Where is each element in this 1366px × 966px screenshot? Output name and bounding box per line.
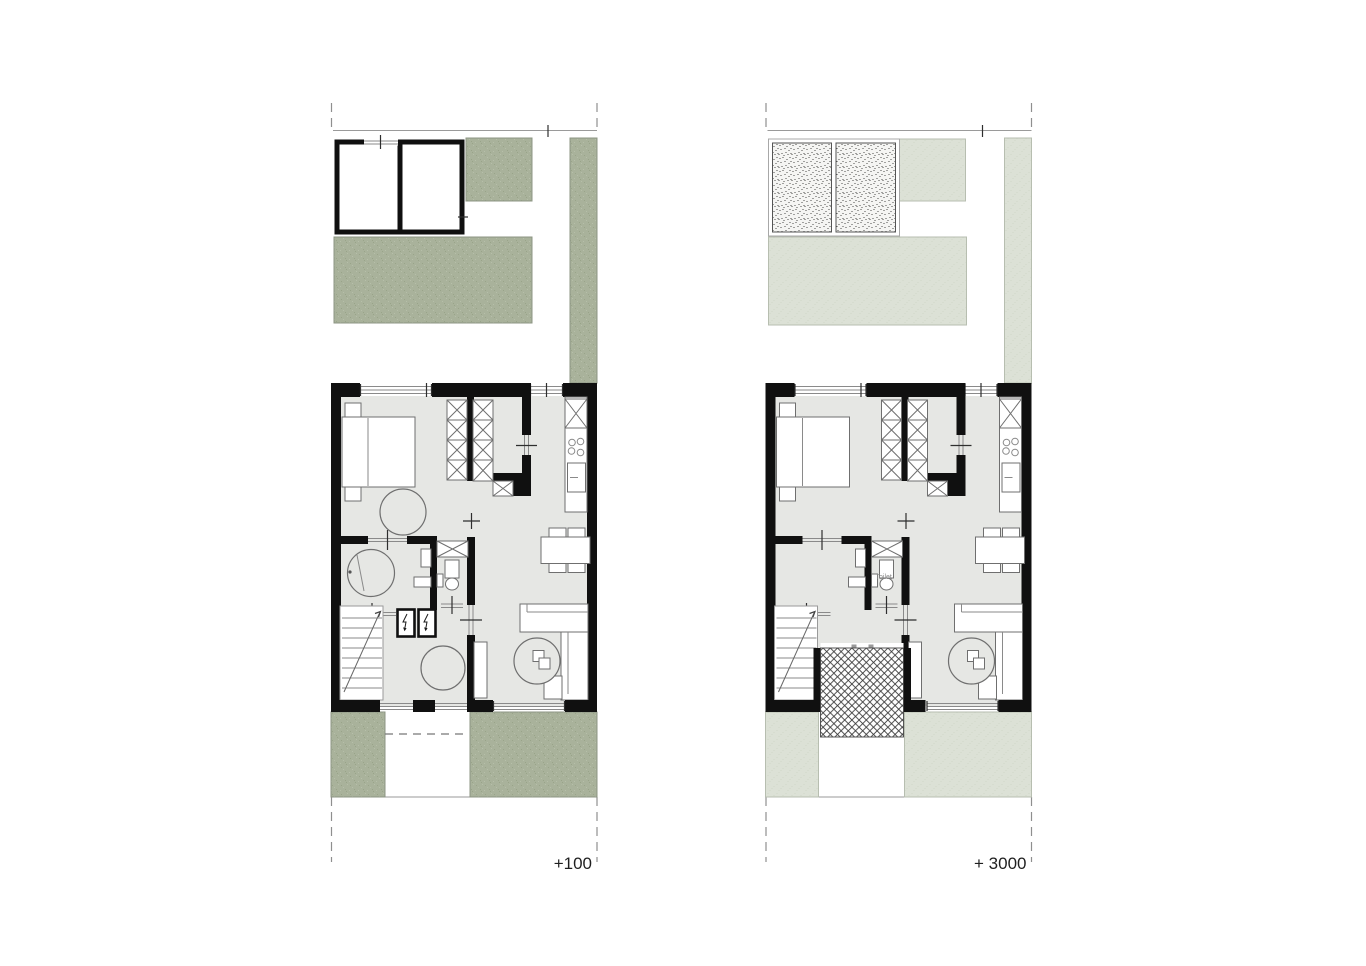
gravel-roof-1 <box>773 143 832 232</box>
garage-roofs <box>769 139 900 236</box>
garage-box-1 <box>337 142 400 232</box>
garage-box-2 <box>400 142 462 232</box>
garden-strip-right <box>570 138 597 383</box>
garden-block-large <box>334 237 532 323</box>
plan-drawing-canvas: +100 <box>0 0 1366 966</box>
toilet-label: Toilet <box>876 574 892 581</box>
floor-plan-sheet: +100 <box>0 0 1366 966</box>
gravel-roof-2 <box>836 143 896 232</box>
garden-block-upper <box>466 138 532 201</box>
garage-boxes <box>337 135 468 232</box>
hall-round-table <box>421 646 465 690</box>
level-label-left: +100 <box>554 854 592 873</box>
void-over-entry <box>814 643 912 737</box>
garden-strip-right <box>1005 138 1032 383</box>
garden-block-upper <box>898 139 966 201</box>
garden-front-right <box>470 712 597 797</box>
level-label-right: + 3000 <box>974 854 1026 873</box>
garden-front-left <box>331 712 385 797</box>
garden-front-right <box>905 712 1032 797</box>
plan-ground-floor: +100 <box>331 103 597 873</box>
shower <box>348 550 395 597</box>
void-hatch <box>821 648 904 737</box>
plan-upper-floor: Toilet + 3000 <box>766 103 1032 873</box>
bedroom-round-table <box>380 489 426 535</box>
garden-block-large <box>769 237 967 325</box>
garden-front-left <box>766 712 819 797</box>
